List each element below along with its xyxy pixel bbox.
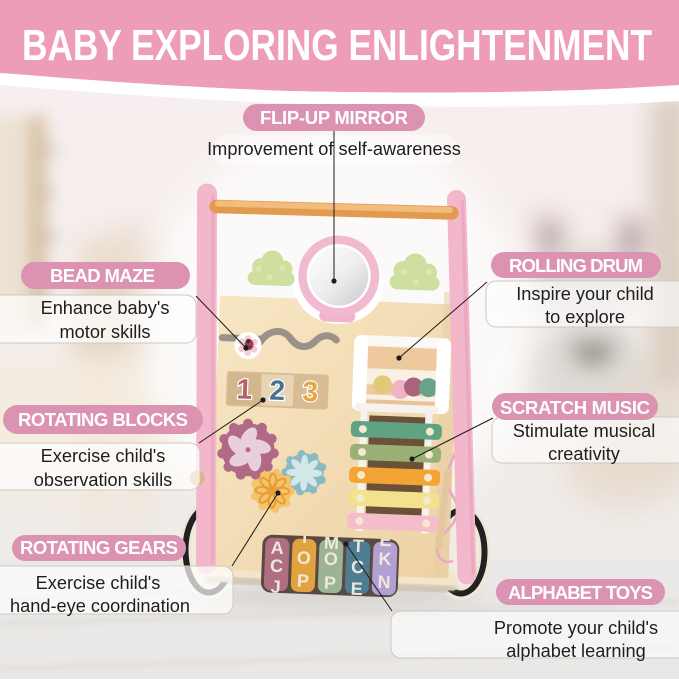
svg-text:1: 1 [236,373,253,405]
svg-text:Stimulate musical: Stimulate musical [513,421,656,441]
svg-text:O: O [297,548,312,569]
svg-text:P: P [324,573,337,593]
svg-text:O: O [324,549,339,570]
svg-text:Promote your child's: Promote your child's [494,618,658,638]
svg-text:C: C [270,556,284,576]
svg-text:ALPHABET TOYS: ALPHABET TOYS [508,582,653,603]
svg-text:observation skills: observation skills [34,470,172,490]
svg-text:creativity: creativity [548,444,621,464]
svg-text:2: 2 [269,374,286,406]
svg-text:T: T [353,536,365,556]
svg-text:hand-eye coordination: hand-eye coordination [10,596,190,616]
svg-text:ROTATING GEARS: ROTATING GEARS [20,537,178,558]
svg-text:K: K [378,549,392,569]
svg-text:alphabet learning: alphabet learning [506,641,646,661]
svg-text:ROLLING DRUM: ROLLING DRUM [509,255,643,276]
svg-text:SCRATCH MUSIC: SCRATCH MUSIC [500,397,650,418]
svg-text:FLIP-UP MIRROR: FLIP-UP MIRROR [260,107,408,128]
svg-text:N: N [377,572,391,592]
svg-text:motor skills: motor skills [60,322,151,342]
svg-text:ROTATING BLOCKS: ROTATING BLOCKS [18,409,188,430]
svg-text:Exercise child's: Exercise child's [36,573,161,593]
svg-text:P: P [297,571,310,591]
svg-text:Exercise child's: Exercise child's [41,446,166,466]
svg-text:BEAD MAZE: BEAD MAZE [50,265,155,286]
svg-text:to explore: to explore [545,307,625,327]
svg-text:Inspire your child: Inspire your child [516,284,653,304]
svg-text:3: 3 [302,376,319,408]
svg-text:BABY EXPLORING ENLIGHTENMENT: BABY EXPLORING ENLIGHTENMENT [22,21,652,70]
svg-text:Enhance baby's: Enhance baby's [41,298,170,318]
svg-text:C: C [351,557,365,577]
svg-text:Improvement of self-awareness: Improvement of self-awareness [207,139,461,159]
